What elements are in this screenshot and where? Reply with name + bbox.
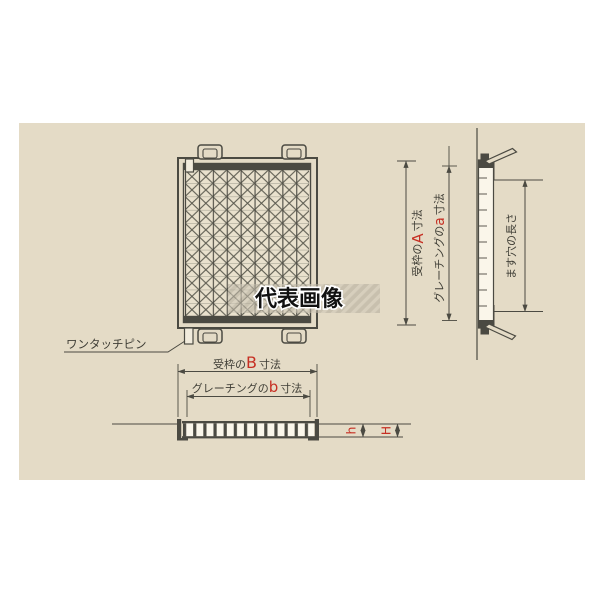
section-teeth	[183, 423, 314, 436]
section-view: h H	[112, 419, 411, 441]
product-image-page: 代表画像 ワンタッチピン 受枠のB寸法 グレーチングのb寸法	[0, 0, 600, 600]
plan-grating-bottom-endplate	[184, 316, 311, 323]
dim-h-label: h	[344, 427, 359, 435]
plan-lug-top-left	[198, 145, 222, 159]
watermark-text: 代表画像	[254, 286, 344, 312]
one-touch-pin-top	[186, 159, 194, 172]
dim-A-label: 受枠のA寸法	[409, 209, 427, 276]
side-hook-bottom	[485, 324, 516, 340]
section-frame-left	[177, 419, 181, 441]
section-frame-right	[315, 419, 319, 441]
plan-grating-top-endplate	[184, 164, 311, 171]
dim-a-label: グレーチングのa寸法	[432, 193, 448, 303]
side-grating-profile	[479, 160, 494, 328]
watermark: 代表画像	[228, 284, 380, 313]
plan-lug-bottom-left	[198, 329, 222, 343]
dim-masu-label: ます穴の長さ	[504, 213, 518, 279]
pin-callout: ワンタッチピン	[64, 337, 185, 352]
one-touch-pin-bottom	[185, 328, 194, 344]
grating-technical-drawing: 代表画像 ワンタッチピン 受枠のB寸法 グレーチングのb寸法	[0, 0, 600, 600]
plan-view	[178, 145, 317, 344]
dim-H-label: H	[379, 426, 394, 435]
plan-lug-top-right	[282, 145, 306, 159]
plan-lug-bottom-right	[282, 329, 306, 343]
dim-B-label: 受枠のB寸法	[213, 353, 281, 372]
one-touch-pin-label: ワンタッチピン	[66, 337, 147, 351]
side-hook-top-base	[481, 154, 490, 161]
dim-b-label: グレーチングのb寸法	[192, 378, 303, 396]
section-bottom-plate	[182, 436, 315, 438]
side-hook-top	[485, 149, 517, 165]
side-view: ます穴の長さ 受枠のA寸法 グレーチングのa寸法	[397, 128, 543, 360]
side-hook-bottom-base	[481, 328, 490, 335]
dimension-b: グレーチングのb寸法	[187, 378, 310, 417]
section-top-plate	[182, 421, 315, 423]
